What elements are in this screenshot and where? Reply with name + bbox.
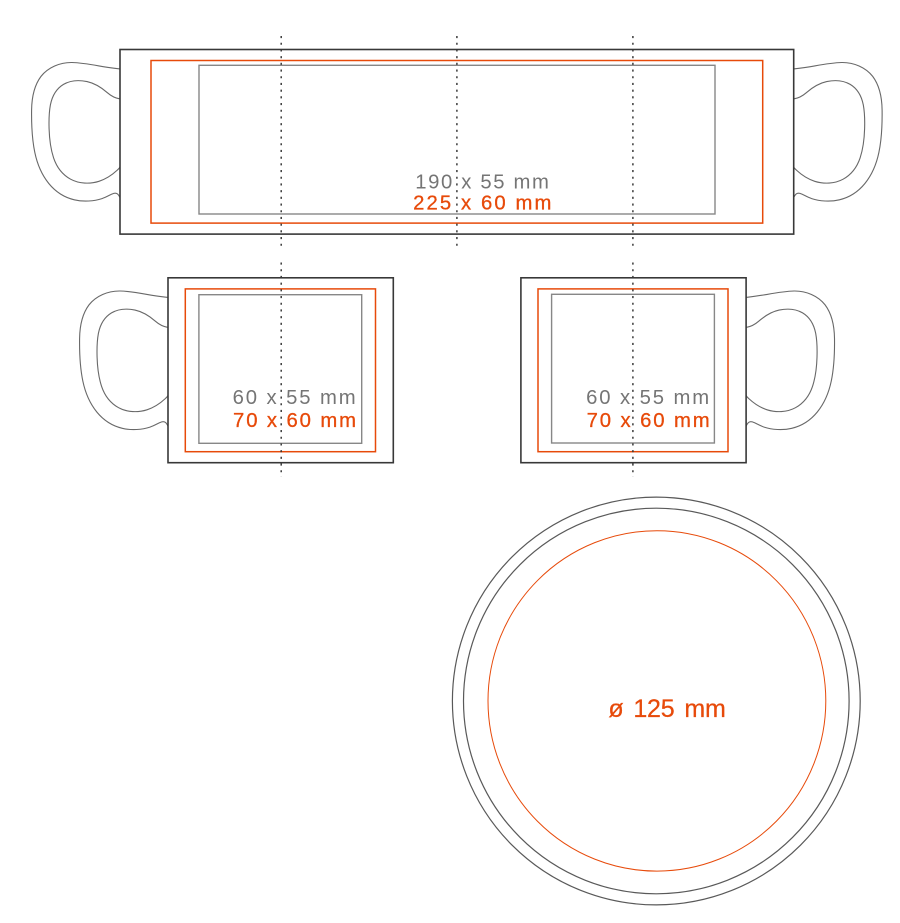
svg-text:70 x 60 mm: 70 x 60 mm <box>233 410 358 432</box>
svg-text:60 x 55 mm: 60 x 55 mm <box>586 387 711 409</box>
svg-text:70 x 60 mm: 70 x 60 mm <box>587 410 712 432</box>
svg-text:190 x 55 mm: 190 x 55 mm <box>415 172 550 194</box>
svg-text:ø 125 mm: ø 125 mm <box>608 695 725 723</box>
svg-text:225 x 60 mm: 225 x 60 mm <box>413 192 553 214</box>
svg-text:60 x 55 mm: 60 x 55 mm <box>233 387 358 409</box>
